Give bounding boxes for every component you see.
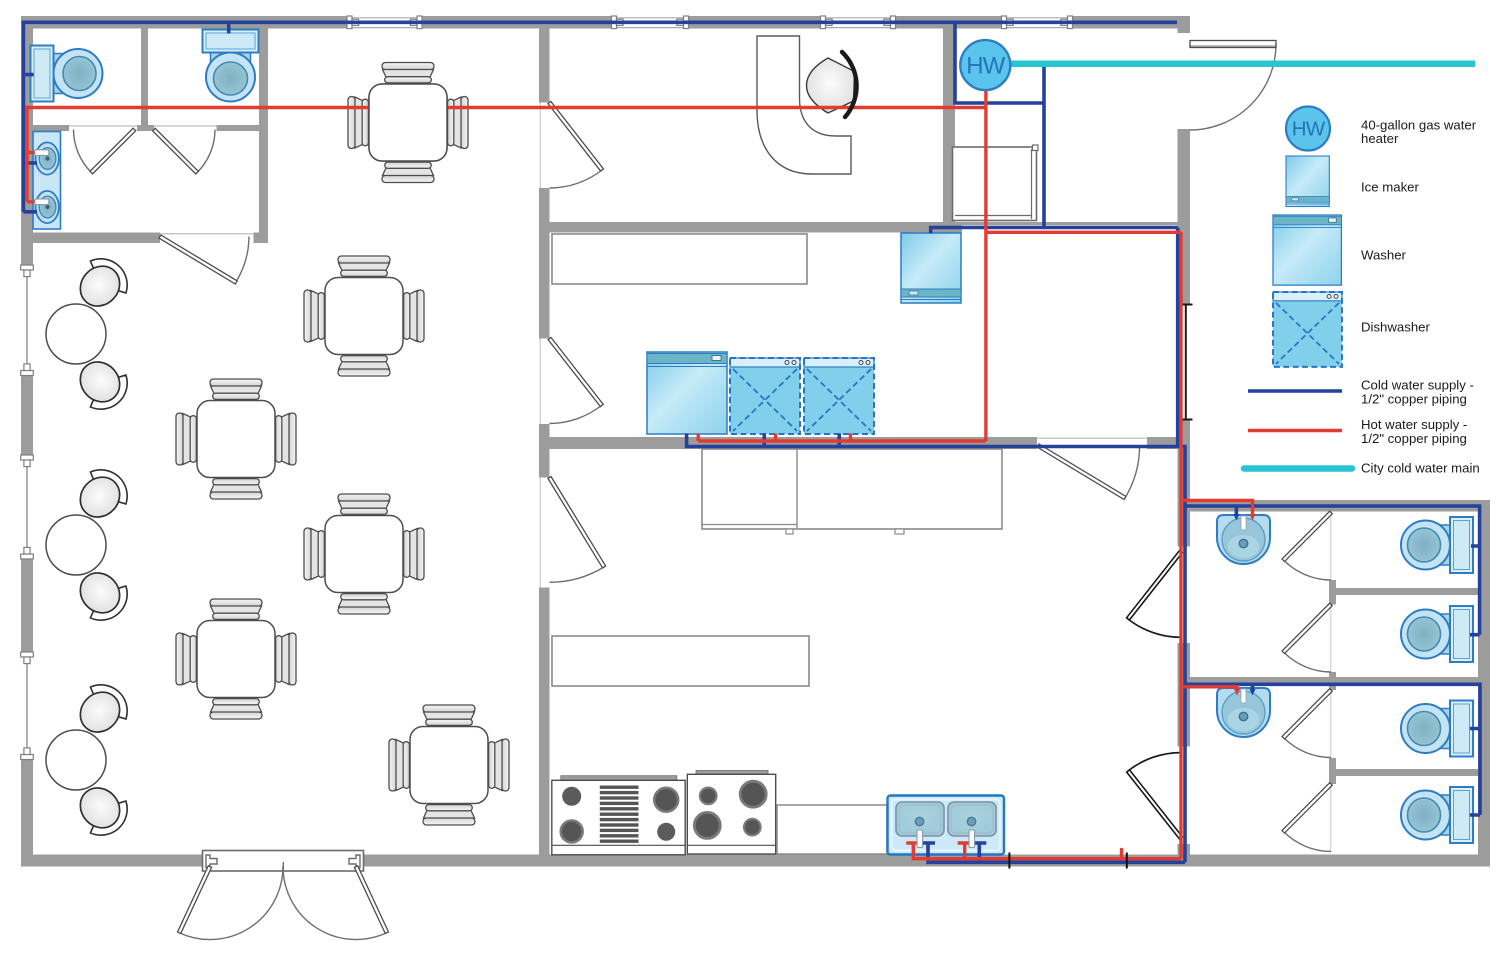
svg-text:heater: heater	[1361, 131, 1399, 146]
svg-text:Hot water supply -: Hot water supply -	[1361, 417, 1467, 432]
svg-text:HW: HW	[1292, 118, 1326, 141]
svg-text:HW: HW	[966, 53, 1005, 80]
svg-text:City cold water main: City cold water main	[1361, 461, 1480, 476]
svg-text:1/2" copper piping: 1/2" copper piping	[1361, 431, 1467, 446]
svg-text:Dishwasher: Dishwasher	[1361, 320, 1431, 335]
svg-text:Washer: Washer	[1361, 248, 1407, 263]
svg-text:1/2" copper piping: 1/2" copper piping	[1361, 392, 1467, 407]
svg-text:Cold water supply -: Cold water supply -	[1361, 378, 1474, 393]
svg-text:Ice maker: Ice maker	[1361, 180, 1420, 195]
